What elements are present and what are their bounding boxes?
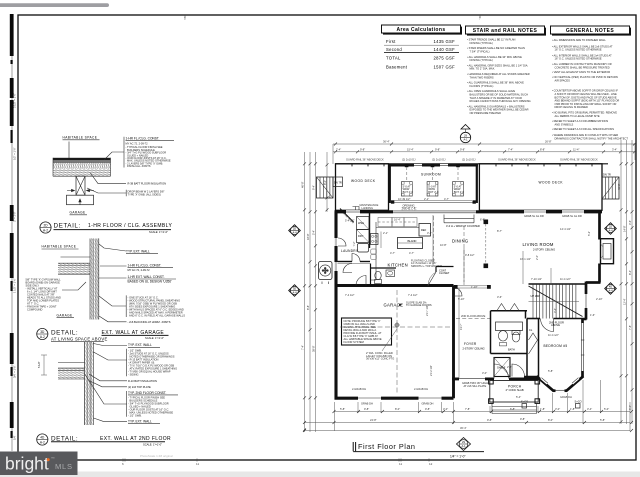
svg-text:WOOD DECK: WOOD DECK xyxy=(539,181,564,185)
svg-text:UP 16R: UP 16R xyxy=(531,294,540,298)
svg-text:AT LIVING SPACE ABOVE: AT LIVING SPACE ABOVE xyxy=(51,336,108,341)
svg-text:GUARD RAIL 36" ABOVE DECK: GUARD RAIL 36" ABOVE DECK xyxy=(498,158,536,162)
svg-text:FOYER: FOYER xyxy=(464,342,477,346)
svg-text:TYPE 'X' GWB. (ALL SIDES): TYPE 'X' GWB. (ALL SIDES) xyxy=(128,193,161,197)
svg-text:2'-1": 2'-1" xyxy=(383,231,388,235)
svg-text:13'-7": 13'-7" xyxy=(459,323,463,330)
svg-text:3" = 1'-0": 3" = 1'-0" xyxy=(13,211,17,222)
svg-text:1/4" = 1'-0": 1/4" = 1'-0" xyxy=(450,455,466,459)
svg-text:DRY: DRY xyxy=(358,234,364,238)
svg-text:5'-0": 5'-0" xyxy=(604,407,609,411)
svg-text:First: First xyxy=(386,39,396,44)
svg-text:THAN TWO RISERS: THAN TWO RISERS xyxy=(470,75,494,79)
svg-text:2875 GSF: 2875 GSF xyxy=(434,55,456,60)
svg-text:TYP. 2ND FLOOR CONST.: TYP. 2ND FLOOR CONST. xyxy=(128,391,166,395)
svg-text:8'-4": 8'-4" xyxy=(628,270,632,275)
svg-text:38'-8": 38'-8" xyxy=(312,345,316,352)
svg-text:GRAB DH: GRAB DH xyxy=(560,395,572,399)
svg-text:DN 7R: DN 7R xyxy=(334,181,342,185)
svg-text:KITCHEN: KITCHEN xyxy=(388,263,408,268)
svg-text:A-4: A-4 xyxy=(292,291,297,295)
svg-text:ABOVE: ABOVE xyxy=(551,323,560,327)
svg-text:5 1/2": 5 1/2" xyxy=(37,361,41,368)
svg-text:Second: Second xyxy=(386,47,402,52)
svg-text:TYP. EXT. WALL: TYP. EXT. WALL xyxy=(128,419,152,423)
svg-text:GARAGE: GARAGE xyxy=(70,211,86,215)
svg-text:GARAGE: GARAGE xyxy=(57,313,73,317)
svg-text:14'-8": 14'-8" xyxy=(623,225,627,232)
svg-text:2-STORY CEILING: 2-STORY CEILING xyxy=(463,346,485,350)
svg-text:3/4" = 1'-0": 3/4" = 1'-0" xyxy=(13,365,17,378)
svg-text:PORCH: PORCH xyxy=(508,385,522,389)
svg-text:3'-4": 3'-4" xyxy=(553,308,557,313)
svg-text:9'-8": 9'-8" xyxy=(487,418,492,422)
svg-text:MLS: MLS xyxy=(55,462,73,471)
svg-text:A-1: A-1 xyxy=(461,444,466,448)
svg-text:8'-8": 8'-8" xyxy=(540,147,545,151)
svg-text:• REFER TO SHEET A-6 FOR ALL: • REFER TO SHEET A-6 FOR ALL SPECIFICATI… xyxy=(552,127,614,131)
svg-text:4'-7": 4'-7" xyxy=(444,197,449,201)
svg-text:3'-6": 3'-6" xyxy=(628,220,632,225)
svg-text:STAIR and RAIL NOTES: STAIR and RAIL NOTES xyxy=(473,28,538,34)
svg-text:6: 6 xyxy=(122,462,124,466)
svg-text:- 2x6 BLOCKING AT HORIZ. JOINT: - 2x6 BLOCKING AT HORIZ. JOINTS xyxy=(128,320,171,324)
svg-text:36'-4": 36'-4" xyxy=(383,140,390,144)
svg-text:A-2: A-2 xyxy=(40,440,45,444)
svg-text:5'-8": 5'-8" xyxy=(548,369,553,373)
svg-text:12'-4": 12'-4" xyxy=(623,298,627,305)
svg-text:TYP. EXT. WALL: TYP. EXT. WALL xyxy=(126,249,150,253)
svg-text:9'-8": 9'-8" xyxy=(435,147,440,151)
svg-text:A-4: A-4 xyxy=(608,229,613,233)
svg-text:3'-0": 3'-0" xyxy=(555,407,560,411)
svg-text:HABITABLE SPACE: HABITABLE SPACE xyxy=(42,245,77,249)
svg-text:2-STORY CEILING: 2-STORY CEILING xyxy=(533,248,555,252)
svg-text:MY AC 72, 2-09-72: MY AC 72, 2-09-72 xyxy=(128,268,151,272)
svg-text:2D: 2D xyxy=(293,227,296,231)
svg-text:HABITABLE SPACE: HABITABLE SPACE xyxy=(63,136,98,140)
svg-text:16'-1 1/2": 16'-1 1/2" xyxy=(520,257,531,261)
svg-text:LANDING: LANDING xyxy=(362,206,374,210)
svg-text:5'-8": 5'-8" xyxy=(340,407,345,411)
svg-text:36'-4": 36'-4" xyxy=(460,426,467,430)
svg-text:9'-8": 9'-8" xyxy=(520,417,525,421)
svg-text:3'-0": 3'-0" xyxy=(482,371,487,375)
svg-text:RICHES CANNOT PASS THROUGH ANY: RICHES CANNOT PASS THROUGH ANY OPENING xyxy=(470,99,531,103)
svg-text:DRAWINGS CONTRACTOR SHALL NOTI: DRAWINGS CONTRACTOR SHALL NOTIFY THE ARC… xyxy=(555,136,629,140)
svg-text:7'-8": 7'-8" xyxy=(628,325,632,330)
svg-text:WOOD DECK: WOOD DECK xyxy=(351,179,376,183)
svg-text:3'-4": 3'-4" xyxy=(587,407,592,411)
svg-text:26'-8": 26'-8" xyxy=(545,140,552,144)
svg-text:10'-49 1/2": 10'-49 1/2" xyxy=(398,197,410,201)
svg-text:18'-8": 18'-8" xyxy=(306,233,310,240)
svg-text:7 3/4" (TYPICAL): 7 3/4" (TYPICAL) xyxy=(470,50,490,54)
svg-text:1'-8": 1'-8" xyxy=(570,407,575,411)
svg-text:bright: bright xyxy=(5,454,49,474)
svg-text:2'-8": 2'-8" xyxy=(507,365,512,369)
svg-text:LIVING ROOM: LIVING ROOM xyxy=(523,242,554,247)
svg-text:FINISH ALL JOINTS: FINISH ALL JOINTS xyxy=(127,164,151,168)
svg-text:1435 GSF: 1435 GSF xyxy=(434,39,456,44)
svg-text:ALL DEBRIS TO A LEGAL DUMP SIT: ALL DEBRIS TO A LEGAL DUMP SITE xyxy=(555,114,600,118)
svg-text:2D: 2D xyxy=(43,223,48,227)
svg-text:1D: 1D xyxy=(609,225,612,229)
svg-text:7'-4 1/2": 7'-4 1/2" xyxy=(408,293,418,297)
svg-text:S+CO: S+CO xyxy=(575,400,582,404)
svg-text:12: 12 xyxy=(429,462,433,466)
svg-text:GENERAL NOTES: GENERAL NOTES xyxy=(566,28,614,34)
svg-text:NOSING (TYPICAL): NOSING (TYPICAL) xyxy=(470,58,494,62)
svg-text:(2) 2x6 TOP PLATE: (2) 2x6 TOP PLATE xyxy=(128,385,151,389)
svg-text:4'-7": 4'-7" xyxy=(409,251,414,255)
svg-text:3D: 3D xyxy=(40,330,45,334)
svg-text:2-GRAB DH: 2-GRAB DH xyxy=(352,387,366,391)
svg-text:4" CONC SLAB: 4" CONC SLAB xyxy=(506,388,524,392)
svg-text:16" O.C. UNLESS NOTED OTHERWIS: 16" O.C. UNLESS NOTED OTHERWISE xyxy=(555,48,602,52)
svg-text:FLOORS (TYPICAL): FLOORS (TYPICAL) xyxy=(470,84,494,88)
svg-text:GRAB SL GL DR: GRAB SL GL DR xyxy=(562,214,582,218)
svg-text:11'-4 1/2": 11'-4 1/2" xyxy=(560,277,571,281)
svg-text:14'-4 1/2": 14'-4 1/2" xyxy=(560,227,571,231)
svg-text:BASED ON UL DESIGN 'U356': BASED ON UL DESIGN 'U356' xyxy=(128,280,173,284)
svg-text:11: 11 xyxy=(196,462,199,466)
svg-text:11: 11 xyxy=(399,462,402,466)
svg-text:BOT 2'-0: BOT 2'-0 xyxy=(428,190,439,194)
svg-text:REF: REF xyxy=(421,228,427,232)
svg-text:PhotoScale 1:48 original: PhotoScale 1:48 original xyxy=(140,454,173,458)
svg-text:WSH: WSH xyxy=(358,221,364,225)
svg-text:8'-0": 8'-0" xyxy=(323,180,327,185)
svg-text:15'-4": 15'-4" xyxy=(407,147,414,151)
svg-text:EXT. WALL AT 2ND FLOOR: EXT. WALL AT 2ND FLOOR xyxy=(100,436,171,442)
svg-text:First Floor Plan: First Floor Plan xyxy=(358,442,415,451)
svg-text:1/4": 1/4" xyxy=(13,435,17,440)
svg-text:4'-0 H + WDW AT COUNTER: 4'-0 H + WDW AT COUNTER xyxy=(446,224,480,228)
svg-text:TOTAL: TOTAL xyxy=(386,55,401,60)
svg-text:CL: CL xyxy=(529,328,533,332)
svg-text:SCALE: 1"=1'-0": SCALE: 1"=1'-0" xyxy=(143,442,162,446)
svg-text:AND SYMBOLS: AND SYMBOLS xyxy=(555,122,574,126)
svg-text:9'-4": 9'-4" xyxy=(312,185,316,190)
svg-text:7'-10 1/2": 7'-10 1/2" xyxy=(531,277,542,281)
svg-text:OR PRESSURE TREATED: OR PRESSURE TREATED xyxy=(470,111,502,115)
svg-text:BOT 2'-0: BOT 2'-0 xyxy=(403,190,414,194)
svg-text:- SIDING: - SIDING xyxy=(128,373,139,377)
svg-text:GRAB SL GL DR: GRAB SL GL DR xyxy=(524,214,544,218)
svg-text:NOSING (TYPICAL): NOSING (TYPICAL) xyxy=(470,41,494,45)
svg-text:ISLAND: ISLAND xyxy=(407,239,416,243)
svg-text:3D: 3D xyxy=(293,287,296,291)
svg-text:MY AC 72, 2-09-72: MY AC 72, 2-09-72 xyxy=(126,141,149,145)
svg-text:3'-6": 3'-6" xyxy=(497,295,502,299)
svg-text:4D: 4D xyxy=(40,435,45,439)
svg-text:4'-7": 4'-7" xyxy=(390,251,395,255)
svg-text:AND 6" O.C. IN FIELD AT ALL GA: AND 6" O.C. IN FIELD AT ALL GARAGE WALLS xyxy=(129,313,185,317)
svg-text:DN 7R: DN 7R xyxy=(603,173,611,177)
svg-text:5'-4 1/2": 5'-4 1/2" xyxy=(345,219,355,223)
svg-text:8'-8": 8'-8" xyxy=(306,305,310,310)
svg-text:8'-7": 8'-7" xyxy=(497,229,502,233)
svg-text:(2) 2x10 DJ: (2) 2x10 DJ xyxy=(432,158,446,162)
svg-text:2ND FLOOR ABOVE: 2ND FLOOR ABOVE xyxy=(461,314,486,318)
svg-text:16'-4": 16'-4" xyxy=(394,218,401,222)
svg-text:2'-10": 2'-10" xyxy=(596,297,603,301)
svg-text:10'-8": 10'-8" xyxy=(440,243,447,247)
svg-text:- 1/2" GWB.: - 1/2" GWB. xyxy=(128,413,142,417)
svg-text:11'-4": 11'-4" xyxy=(573,147,579,151)
svg-text:5'-2": 5'-2" xyxy=(587,231,591,236)
svg-text:Basement: Basement xyxy=(386,65,408,70)
svg-text:A-2: A-2 xyxy=(40,335,45,339)
svg-text:9'-8": 9'-8" xyxy=(360,147,365,151)
svg-text:1-HR FL./CLG. CONST.: 1-HR FL./CLG. CONST. xyxy=(128,263,162,267)
svg-text:LAUNDRY: LAUNDRY xyxy=(341,249,359,253)
svg-text:1 1/2" = 1'-0": 1 1/2" = 1'-0" xyxy=(13,278,17,293)
svg-text:1'-10": 1'-10" xyxy=(471,285,478,289)
svg-text:CLOSET: CLOSET xyxy=(439,271,450,275)
svg-text:BEDROOM #5: BEDROOM #5 xyxy=(544,344,568,348)
svg-text:CONCRETE SHALL BE PRESSURE TRE: CONCRETE SHALL BE PRESSURE TREATED xyxy=(555,65,610,69)
svg-text:COMPOUND: COMPOUND xyxy=(27,308,43,312)
svg-text:1440 GSF: 1440 GSF xyxy=(434,47,456,52)
svg-text:11'-4 1/2": 11'-4 1/2" xyxy=(548,333,559,337)
svg-text:MIN. TO 2" DIA. MAX.: MIN. TO 2" DIA. MAX. xyxy=(470,67,496,71)
svg-text:S+CO: S+CO xyxy=(521,400,528,404)
svg-text:3'-0": 3'-0" xyxy=(443,407,448,411)
svg-text:6'-8": 6'-8" xyxy=(480,218,485,222)
svg-text:8'-0": 8'-0" xyxy=(548,418,553,422)
svg-text:9'-8 1/2": 9'-8 1/2" xyxy=(465,253,475,257)
svg-text:GRAB DH: GRAB DH xyxy=(361,402,373,406)
svg-text:GUARD RAIL 36" ABOVE DECK: GUARD RAIL 36" ABOVE DECK xyxy=(346,158,384,162)
svg-text:1'-6": 1'-6" xyxy=(590,313,595,317)
svg-text:29: 29 xyxy=(464,134,467,138)
svg-text:A-2: A-2 xyxy=(43,228,48,232)
svg-text:SHELF: SHELF xyxy=(497,366,506,370)
svg-text:7'-4": 7'-4" xyxy=(301,345,305,350)
svg-text:1507 GSF: 1507 GSF xyxy=(434,65,456,70)
svg-text:2'-1": 2'-1" xyxy=(424,197,429,201)
svg-text:BATH: BATH xyxy=(508,348,515,352)
svg-text:SCALE: 1"=1'-0": SCALE: 1"=1'-0" xyxy=(149,230,168,234)
svg-text:7: 7 xyxy=(479,17,481,21)
svg-text:46'-8": 46'-8" xyxy=(617,183,621,190)
svg-text:4D: 4D xyxy=(609,285,612,289)
svg-text:AT 2x6 SILL PLATE: AT 2x6 SILL PLATE xyxy=(464,384,487,388)
svg-text:TYP. EXT. WALL: TYP. EXT. WALL xyxy=(128,343,152,347)
svg-text:• ALL DIMENSIONS ARE TO FINISH: • ALL DIMENSIONS ARE TO FINISHED WALL xyxy=(552,38,606,42)
svg-text:2'-0": 2'-0" xyxy=(535,255,539,260)
svg-text:9'-8": 9'-8" xyxy=(425,407,430,411)
svg-text:7'-2": 7'-2" xyxy=(352,241,356,246)
svg-text:21'-2 1/4": 21'-2 1/4" xyxy=(429,365,433,376)
svg-text:5'-8": 5'-8" xyxy=(600,418,605,422)
svg-text:2-GRAB DH: 2-GRAB DH xyxy=(414,387,428,391)
svg-text:R-38 BATT FLOOR INSULATION: R-38 BATT FLOOR INSULATION xyxy=(128,182,167,186)
svg-text:A-1: A-1 xyxy=(463,138,468,142)
svg-text:5'-4": 5'-4" xyxy=(516,395,521,399)
svg-text:GUARD RAIL 36" ABOVE DECK: GUARD RAIL 36" ABOVE DECK xyxy=(560,158,598,162)
svg-text:FLOOR SYSTEM: FLOOR SYSTEM xyxy=(344,340,364,344)
svg-text:9'-8": 9'-8" xyxy=(460,147,465,151)
svg-text:AIR SPACES: AIR SPACES xyxy=(555,79,571,83)
svg-text:6'-8": 6'-8" xyxy=(510,407,515,411)
svg-text:A-4: A-4 xyxy=(608,289,613,293)
svg-text:™: ™ xyxy=(51,457,55,461)
svg-text:1-HR FLOOR / CLG. ASSEMBLY: 1-HR FLOOR / CLG. ASSEMBLY xyxy=(88,223,172,229)
svg-text:A-4: A-4 xyxy=(292,231,297,235)
svg-text:36"x36"x12" CONC FTG: 36"x36"x12" CONC FTG xyxy=(366,357,394,361)
svg-text:8'-0": 8'-0" xyxy=(395,407,400,411)
svg-text:Area Calculations: Area Calculations xyxy=(396,27,445,33)
svg-text:SCALE: 1"=1'-0": SCALE: 1"=1'-0" xyxy=(145,336,164,340)
svg-text:7'-8": 7'-8" xyxy=(465,407,470,411)
svg-text:1-HR FL./CLG. CONST.: 1-HR FL./CLG. CONST. xyxy=(126,137,160,141)
svg-text:(2) 2x10 DJ: (2) 2x10 DJ xyxy=(402,158,416,162)
svg-text:1/2" = 1'-0": 1/2" = 1'-0" xyxy=(13,147,17,160)
svg-text:7'-4": 7'-4" xyxy=(508,147,513,151)
svg-text:9'-8": 9'-8" xyxy=(364,407,369,411)
svg-text:DINING: DINING xyxy=(452,239,468,244)
svg-text:7'-4 1/2": 7'-4 1/2" xyxy=(345,293,355,297)
svg-text:BOT 2'-0: BOT 2'-0 xyxy=(454,190,465,194)
svg-text:24'-8": 24'-8" xyxy=(370,418,377,422)
svg-text:5'-4": 5'-4" xyxy=(312,230,316,235)
svg-text:3'-4": 3'-4" xyxy=(612,147,617,151)
svg-text:1'-8": 1'-8" xyxy=(540,407,545,411)
svg-text:DETAIL:: DETAIL: xyxy=(54,223,81,230)
svg-text:3'-4": 3'-4" xyxy=(427,231,432,235)
svg-text:DROP CEILING IS FRAMED: DROP CEILING IS FRAMED xyxy=(555,105,589,109)
svg-text:16" O.C. UNLESS NOTED OTHERWIS: 16" O.C. UNLESS NOTED OTHERWISE xyxy=(555,57,602,61)
svg-text:SUNROOM: SUNROOM xyxy=(421,172,441,176)
svg-text:R-13 BATT INSULATION: R-13 BATT INSULATION xyxy=(128,379,157,383)
svg-text:3 1/2" = 1'-0": 3 1/2" = 1'-0" xyxy=(13,93,17,108)
svg-text:21'-7 1/4": 21'-7 1/4" xyxy=(425,305,429,316)
svg-text:5: 5 xyxy=(184,17,186,21)
svg-text:1-HR EXT. WALL CONST.: 1-HR EXT. WALL CONST. xyxy=(128,275,165,279)
svg-text:(2) 2x10 DJ: (2) 2x10 DJ xyxy=(462,158,476,162)
svg-text:• VENT ALL EXHAUST FANS TO THE: • VENT ALL EXHAUST FANS TO THE EXTERIOR xyxy=(552,70,610,74)
svg-text:46'-8": 46'-8" xyxy=(301,181,305,188)
svg-text:GRAB DH: GRAB DH xyxy=(422,402,434,406)
